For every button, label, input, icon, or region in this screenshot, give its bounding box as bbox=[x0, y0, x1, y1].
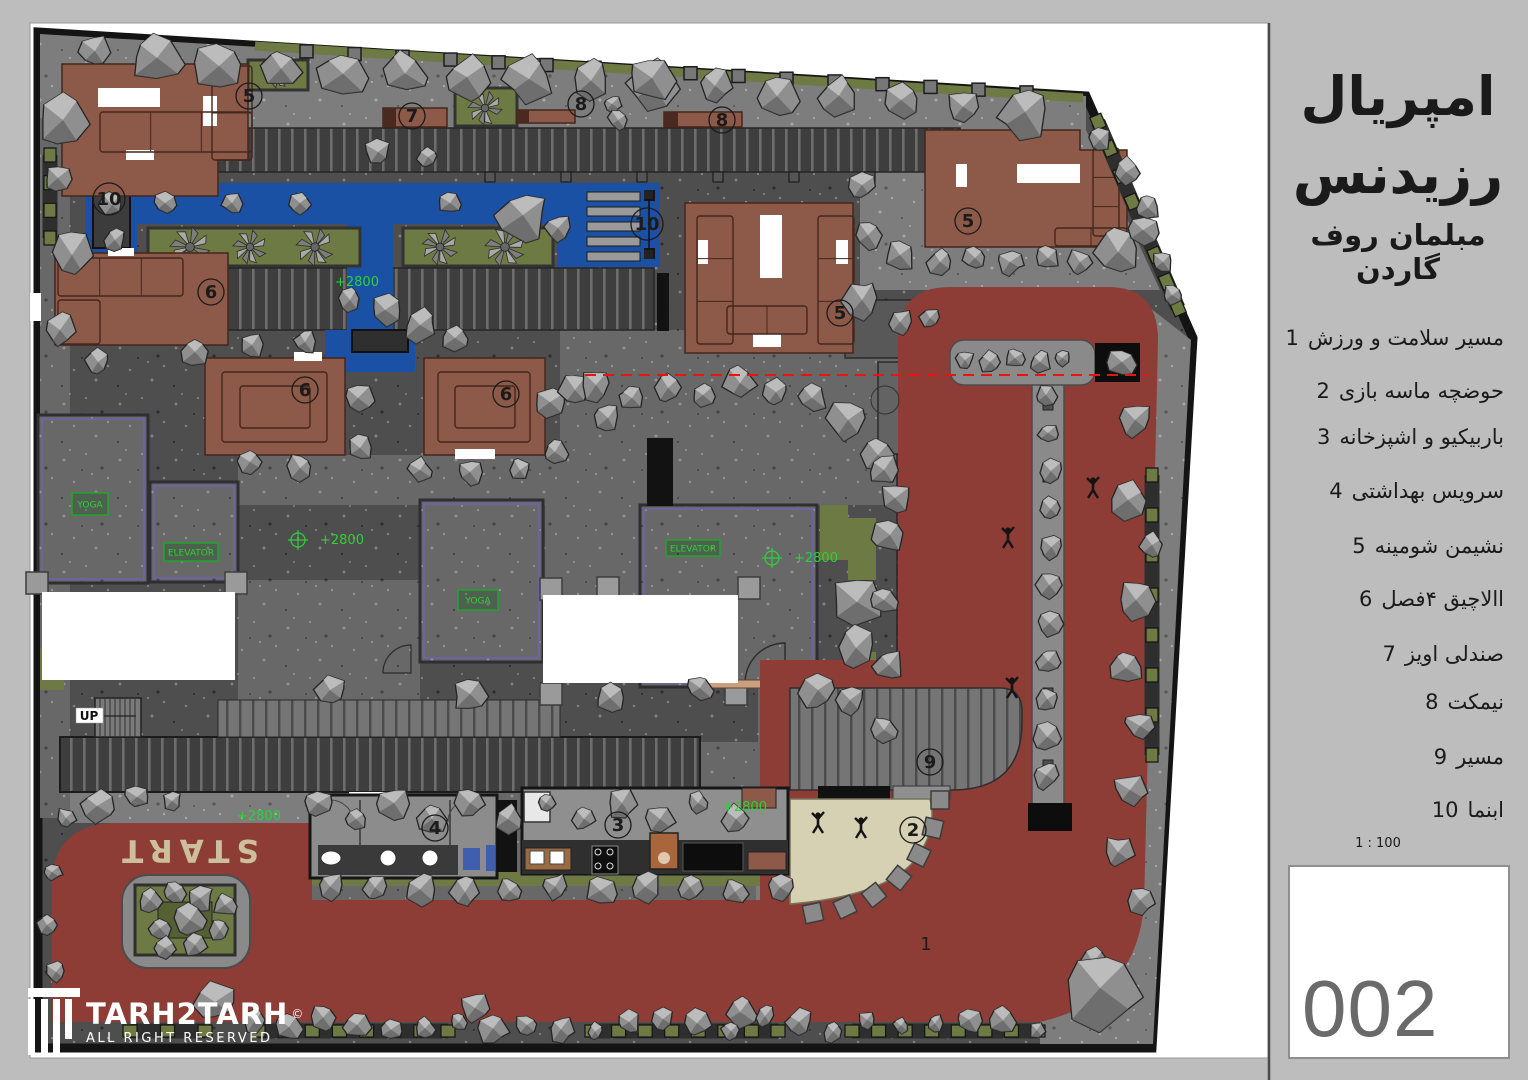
logo-name: TARH2TARH bbox=[86, 997, 288, 1031]
legend-num: 7 bbox=[1382, 642, 1395, 666]
up-label: UP bbox=[80, 709, 99, 723]
project-title: امپریال رزیدنس bbox=[1268, 58, 1528, 214]
legend-num: 1 bbox=[1285, 326, 1298, 350]
legend-label: نیمکت bbox=[1447, 690, 1504, 714]
elevation-tag: +2800 bbox=[723, 800, 767, 815]
plan-shape bbox=[748, 852, 786, 870]
legend-item-5: 5نشیمن شومینه bbox=[1268, 534, 1504, 558]
room-tag-text: YOGA bbox=[464, 597, 491, 607]
plan-shape bbox=[872, 1025, 886, 1037]
plan-shape bbox=[732, 69, 745, 82]
plan-shape bbox=[638, 1025, 652, 1037]
legend-label: االاچیق ۴فصل bbox=[1381, 587, 1504, 611]
legend-num: 5 bbox=[1352, 534, 1365, 558]
plan-shape bbox=[225, 572, 247, 594]
room-tag-text: ELEVATOR bbox=[670, 545, 716, 555]
plan-shape bbox=[352, 330, 408, 352]
plan-shape bbox=[60, 737, 700, 792]
plan-shape bbox=[644, 190, 653, 199]
plan-shape bbox=[658, 852, 670, 864]
plan-shape bbox=[481, 104, 488, 111]
column-icon bbox=[28, 982, 80, 1058]
legend-item-7: 7صندلی اویز bbox=[1268, 642, 1504, 666]
legend-num: 6 bbox=[1359, 587, 1372, 611]
legend-item-9: 9مسیر bbox=[1268, 745, 1504, 769]
plan-shape bbox=[150, 482, 238, 582]
plan-shape bbox=[517, 110, 529, 123]
plan-shape bbox=[422, 850, 438, 866]
plan-shape bbox=[455, 449, 495, 459]
plan-shape bbox=[383, 108, 396, 127]
path-9-area bbox=[790, 688, 1022, 790]
plan-shape bbox=[836, 240, 848, 264]
plan-shape bbox=[1146, 508, 1158, 522]
plan-shape bbox=[647, 438, 673, 506]
plan-shape bbox=[44, 148, 56, 162]
scale-note: 1 : 100 bbox=[1328, 836, 1428, 851]
legend-item-8: 8نیمکت bbox=[1268, 690, 1504, 714]
plan-shape bbox=[218, 700, 560, 737]
callout-number: 10 bbox=[96, 189, 121, 210]
plan-shape bbox=[744, 1025, 758, 1037]
copyright-mark: © bbox=[291, 1007, 303, 1021]
room-tag-text: ELEVATOR bbox=[168, 549, 214, 559]
plan-shape bbox=[98, 88, 160, 107]
plan-shape bbox=[637, 172, 647, 182]
track-number-label: 1 bbox=[920, 934, 931, 955]
plan-shape bbox=[848, 518, 876, 580]
plan-shape bbox=[684, 67, 697, 80]
plan-shape bbox=[738, 577, 760, 599]
plan-shape bbox=[771, 1025, 785, 1037]
sheet-subtitle: مبلمان روف گاردن bbox=[1268, 218, 1528, 286]
elevation-tag: +2800 bbox=[237, 809, 281, 824]
callout-number: 6 bbox=[500, 384, 513, 405]
legend-num: 2 bbox=[1316, 379, 1329, 403]
logo: TARH2TARH© ALL RIGHT RESERVED bbox=[28, 982, 303, 1058]
legend-label: نشیمن شومینه bbox=[1375, 534, 1504, 558]
legend-item-4: 4سرویس بهداشتی bbox=[1268, 479, 1504, 503]
elevation-tag: +2800 bbox=[320, 533, 364, 548]
plan-shape bbox=[587, 192, 640, 201]
legend-label: ابنما bbox=[1467, 798, 1504, 822]
legend-label: مسیر bbox=[1456, 745, 1504, 769]
callout-number: 5 bbox=[243, 86, 256, 107]
plan-shape bbox=[30, 293, 41, 321]
legend-item-1: 1مسیر سلامت و ورزش bbox=[1268, 326, 1504, 350]
title-panel: امپریال رزیدنس مبلمان روف گاردن 1مسیر سل… bbox=[1268, 0, 1528, 1080]
sheet-number: 002 bbox=[1302, 963, 1438, 1055]
plan-shape bbox=[312, 900, 770, 1022]
legend-label: مسیر سلامت و ورزش bbox=[1308, 326, 1504, 350]
plan-shape bbox=[26, 572, 48, 594]
plan-shape bbox=[587, 252, 640, 261]
plan-shape bbox=[321, 851, 341, 865]
sheet-number-box: 002 bbox=[1288, 865, 1510, 1059]
legend-label: باربیکیو و اشپزخانه bbox=[1339, 425, 1504, 449]
callout-number: 2 bbox=[907, 820, 920, 841]
plan-shape bbox=[294, 352, 322, 361]
plan-shape bbox=[540, 683, 562, 705]
plan-shape bbox=[1028, 803, 1072, 831]
plan-shape bbox=[644, 250, 653, 259]
legend-num: 10 bbox=[1432, 798, 1459, 822]
plan-shape bbox=[683, 843, 743, 871]
callout-number: 5 bbox=[962, 211, 975, 232]
plan-shape bbox=[160, 128, 960, 172]
plan-shape bbox=[1017, 164, 1080, 183]
plan-shape bbox=[550, 851, 564, 864]
plan-shape bbox=[789, 172, 799, 182]
plan-shape bbox=[246, 243, 253, 250]
plan-shape bbox=[463, 848, 480, 870]
plan-shape bbox=[1146, 748, 1158, 762]
callout-number: 3 bbox=[612, 815, 625, 836]
plan-shape bbox=[760, 215, 782, 278]
plan-shape bbox=[818, 786, 890, 799]
callout-number: 8 bbox=[575, 94, 588, 115]
plan-shape bbox=[664, 112, 678, 127]
plan-shape bbox=[530, 851, 544, 864]
plan-shape bbox=[186, 243, 195, 252]
plan-shape bbox=[561, 172, 571, 182]
plan-shape bbox=[492, 56, 505, 69]
plan-shape bbox=[587, 237, 640, 246]
elevation-tag: +2800 bbox=[335, 275, 379, 290]
callout-number: 10 bbox=[634, 214, 659, 235]
plan-shape bbox=[1146, 628, 1158, 642]
plan-shape bbox=[657, 273, 669, 331]
project-title-line1: امپریال bbox=[1268, 58, 1528, 136]
plan-shape bbox=[587, 207, 640, 216]
elevation-tag: +2800 bbox=[794, 551, 838, 566]
start-label: START bbox=[115, 832, 259, 868]
plan-shape bbox=[924, 80, 937, 93]
legend-num: 4 bbox=[1329, 479, 1342, 503]
plan-shape bbox=[1146, 668, 1158, 682]
callout-number: 7 bbox=[406, 106, 419, 127]
legend-num: 9 bbox=[1434, 745, 1447, 769]
plan-shape bbox=[931, 791, 949, 809]
callout-number: 4 bbox=[429, 818, 442, 839]
plan-shape bbox=[485, 172, 495, 182]
plan-shape bbox=[380, 850, 396, 866]
plan-shape bbox=[698, 240, 708, 264]
project-title-line2: رزیدنس bbox=[1268, 136, 1528, 214]
callout-number: 6 bbox=[299, 380, 312, 401]
callout-number: 8 bbox=[716, 110, 729, 131]
drawing-sheet: 587810106556694321+2800+2800+2800+2800+2… bbox=[0, 0, 1528, 1080]
plan-shape bbox=[436, 243, 444, 251]
plan-shape bbox=[203, 96, 217, 126]
plan-shape bbox=[44, 231, 56, 245]
plan-shape bbox=[543, 595, 738, 683]
legend-item-6: 6االاچیق ۴فصل bbox=[1268, 587, 1504, 611]
legend-label: سرویس بهداشتی bbox=[1352, 479, 1504, 503]
plan-shape bbox=[501, 243, 510, 252]
legend-label: حوضچه ماسه بازی bbox=[1339, 379, 1504, 403]
callout-number: 9 bbox=[924, 752, 937, 773]
logo-tagline: ALL RIGHT RESERVED bbox=[86, 1032, 303, 1045]
plan-shape bbox=[713, 172, 723, 182]
legend-num: 3 bbox=[1317, 425, 1330, 449]
plan-shape bbox=[956, 164, 967, 187]
legend-label: صندلی اویز bbox=[1405, 642, 1504, 666]
plan-shape bbox=[444, 53, 457, 66]
plan-shape bbox=[311, 243, 319, 251]
plan-shape bbox=[753, 334, 781, 347]
room-tag-text: YOGA bbox=[76, 501, 103, 511]
callout-number: 5 bbox=[834, 303, 847, 324]
callout-number: 6 bbox=[205, 282, 218, 303]
plan-shape bbox=[300, 45, 313, 58]
legend-item-2: 2حوضچه ماسه بازی bbox=[1268, 379, 1504, 403]
legend-item-10: 10ابنما bbox=[1268, 798, 1504, 822]
plan-shape bbox=[486, 845, 495, 871]
plan-shape bbox=[1146, 468, 1158, 482]
legend-item-3: 3باربیکیو و اشپزخانه bbox=[1268, 425, 1504, 449]
plan-shape bbox=[420, 500, 543, 662]
plan-shape bbox=[845, 1025, 859, 1037]
legend-num: 8 bbox=[1425, 690, 1438, 714]
plan-shape bbox=[802, 902, 823, 923]
plan-shape bbox=[44, 203, 56, 217]
plan-shape bbox=[42, 592, 235, 680]
